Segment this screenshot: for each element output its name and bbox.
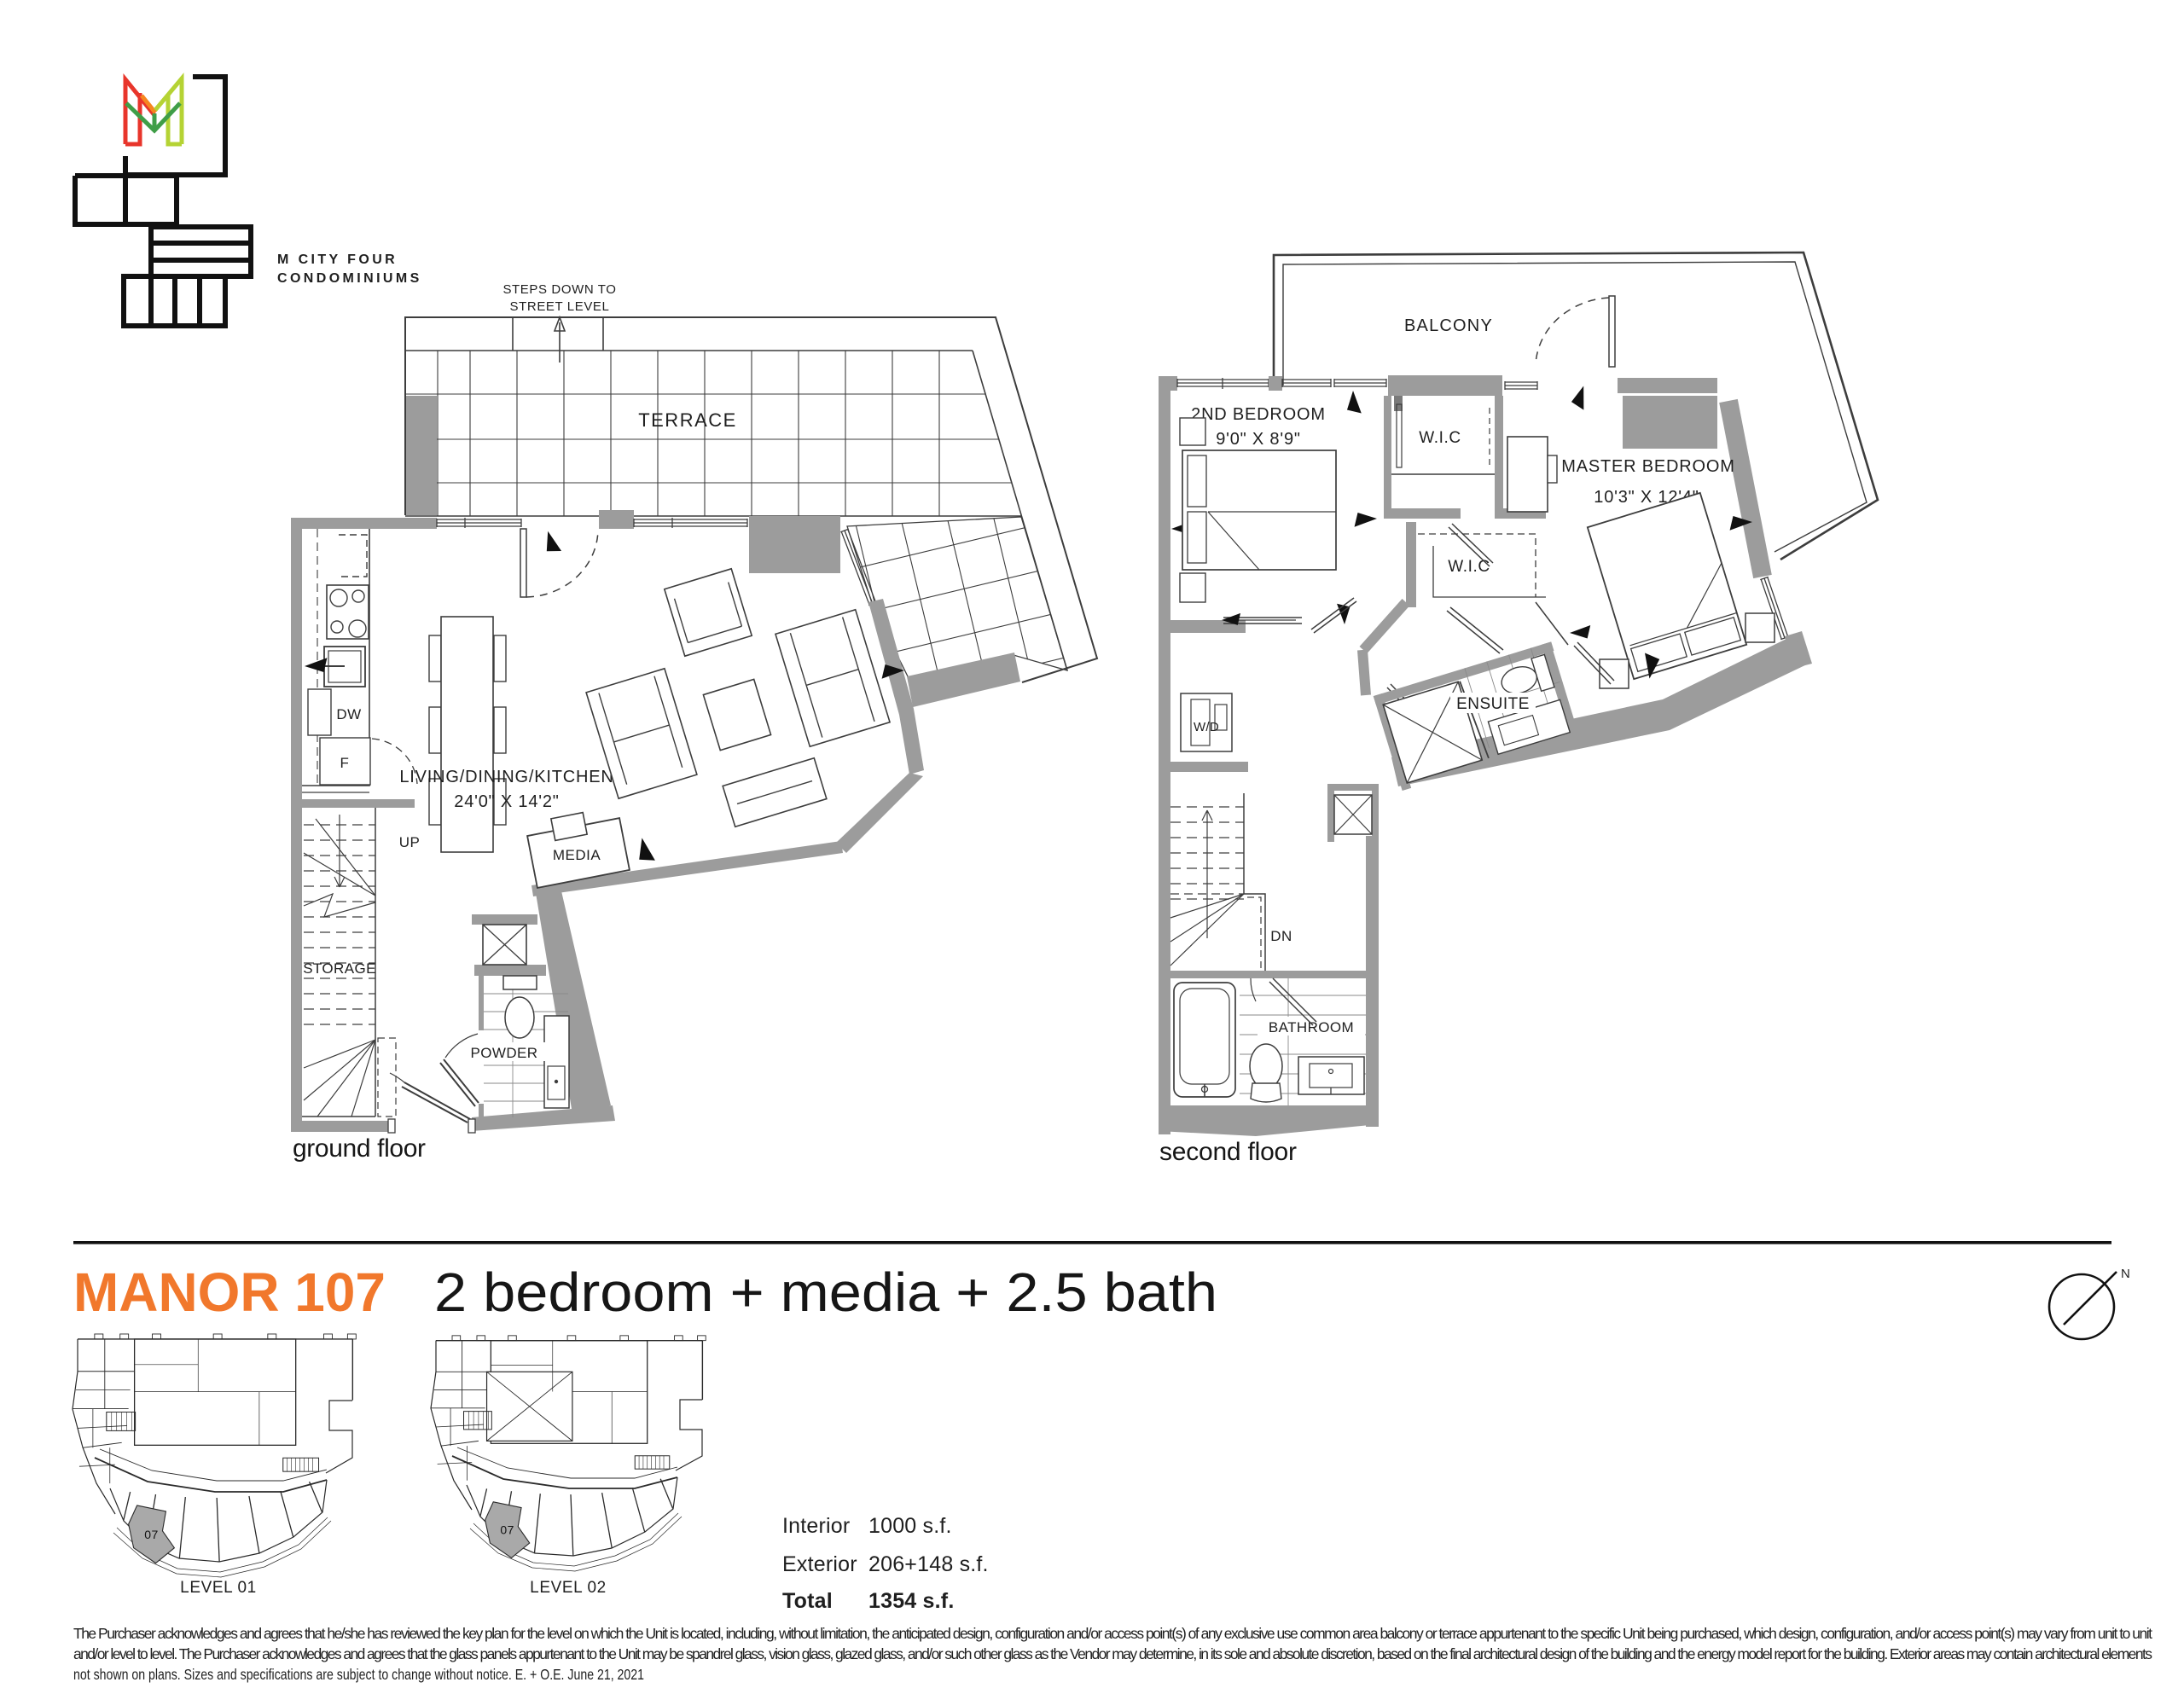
svg-text:STEPS DOWN TO: STEPS DOWN TO <box>502 282 616 297</box>
svg-text:F: F <box>340 755 350 771</box>
svg-text:UP: UP <box>399 834 421 850</box>
svg-text:BATHROOM: BATHROOM <box>1269 1019 1354 1035</box>
svg-text:LIVING/DINING/KITCHEN: LIVING/DINING/KITCHEN <box>399 768 613 786</box>
svg-text:W/D: W/D <box>1194 720 1219 734</box>
svg-text:Total: Total <box>782 1589 833 1613</box>
svg-text:LEVEL 02: LEVEL 02 <box>530 1579 607 1597</box>
svg-text:ground floor: ground floor <box>293 1134 426 1163</box>
svg-text:LEVEL 01: LEVEL 01 <box>180 1579 257 1597</box>
svg-text:The Purchaser acknowledges and: The Purchaser acknowledges and agrees th… <box>73 1625 2152 1642</box>
svg-text:not shown on plans. Sizes and: not shown on plans. Sizes and specificat… <box>73 1666 644 1683</box>
svg-text:24'0" X 14'2": 24'0" X 14'2" <box>454 792 559 811</box>
svg-text:Interior: Interior <box>782 1514 850 1538</box>
svg-text:CONDOMINIUMS: CONDOMINIUMS <box>277 271 422 286</box>
svg-text:07: 07 <box>144 1528 159 1541</box>
svg-text:BALCONY: BALCONY <box>1404 316 1493 335</box>
svg-text:POWDER: POWDER <box>471 1045 538 1061</box>
svg-text:and/or level to level. The Pur: and/or level to level. The Purchaser ack… <box>73 1645 2152 1662</box>
svg-text:MEDIA: MEDIA <box>553 847 601 863</box>
svg-text:W.I.C: W.I.C <box>1419 429 1461 447</box>
svg-text:MASTER BEDROOM: MASTER BEDROOM <box>1561 457 1734 476</box>
svg-text:MANOR 107: MANOR 107 <box>73 1262 386 1323</box>
svg-text:Exterior: Exterior <box>782 1552 857 1576</box>
svg-text:DW: DW <box>336 706 361 722</box>
svg-text:2ND BEDROOM: 2ND BEDROOM <box>1191 405 1326 424</box>
svg-text:07: 07 <box>500 1523 514 1536</box>
svg-text:2 bedroom + media + 2.5 bath: 2 bedroom + media + 2.5 bath <box>434 1262 1217 1323</box>
svg-text:ENSUITE: ENSUITE <box>1456 695 1530 713</box>
svg-text:STREET LEVEL: STREET LEVEL <box>510 299 610 314</box>
svg-text:STORAGE: STORAGE <box>303 960 376 977</box>
svg-text:9'0" X 8'9": 9'0" X 8'9" <box>1216 430 1301 449</box>
svg-text:1000 s.f.: 1000 s.f. <box>868 1514 952 1538</box>
svg-text:N: N <box>2121 1267 2130 1281</box>
svg-text:206+148 s.f.: 206+148 s.f. <box>868 1552 989 1576</box>
svg-text:1354 s.f.: 1354 s.f. <box>868 1589 954 1613</box>
svg-text:M CITY FOUR: M CITY FOUR <box>277 252 398 267</box>
svg-text:TERRACE: TERRACE <box>638 409 737 431</box>
svg-text:second floor: second floor <box>1159 1138 1297 1166</box>
svg-text:DN: DN <box>1270 928 1292 944</box>
